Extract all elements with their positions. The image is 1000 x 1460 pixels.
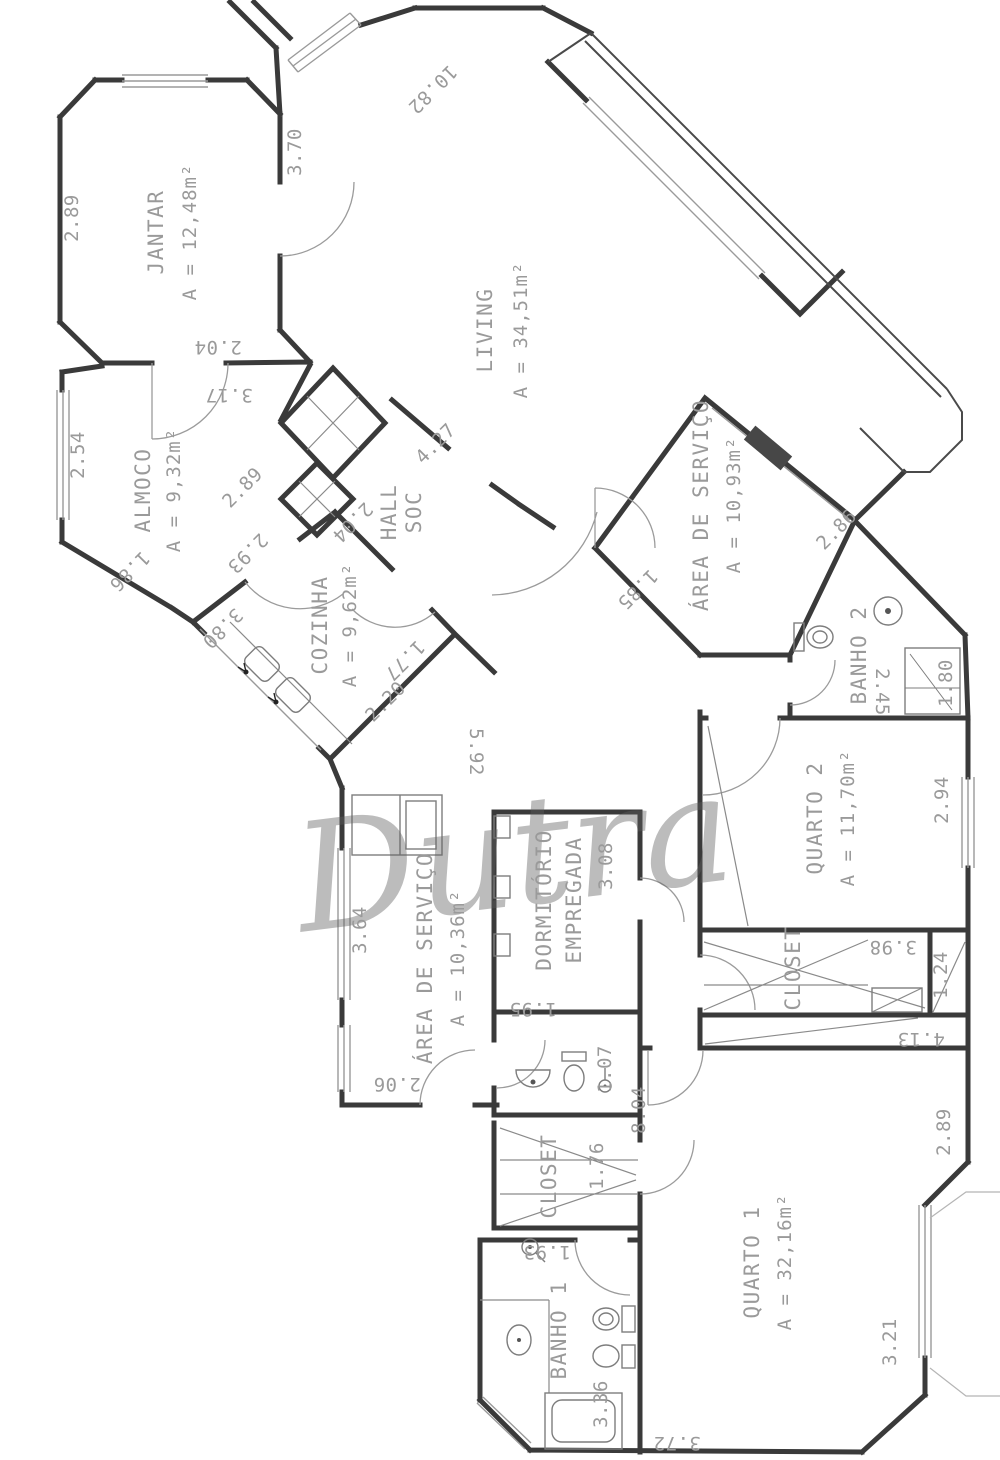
area-quarto2: A = 11,70m² [837,750,859,887]
floor-plan-drawing: Dutra JANTAR A = 12,48m² LIVING A = 34,5… [0,0,1000,1460]
dim-label: 1.07 [594,1045,616,1093]
wall-jantar [60,2,310,622]
area-jantar: A = 12,48m² [179,164,201,301]
balcony-outline [930,1192,1000,1396]
label-living: LIVING [473,288,497,373]
dim-label: 3.17 [205,384,253,406]
dim-label: 1.80 [935,659,957,707]
dim-label: 2.04 [194,336,242,358]
dim-label: 1.24 [930,951,952,999]
area-cozinha: A = 9,62m² [339,563,361,687]
dim-label: 4.13 [897,1028,945,1050]
dim-label: 2.04 [328,498,377,547]
banho2-sink-icon [874,597,902,625]
dim-label: 2.06 [373,1073,421,1095]
area-living: A = 34,51m² [510,262,532,399]
dim-label: 2.89 [218,463,267,512]
label-dormitorio-2: EMPREGADA [562,836,586,963]
dim-label: 8.04 [628,1086,650,1134]
area-servico-esq: A = 10,36m² [447,890,469,1027]
dim-label: 3.70 [284,128,306,176]
kitchen-sink-icon [238,644,313,715]
dim-label: 2.54 [67,431,89,479]
label-closet1: CLOSET [537,1134,561,1219]
label-servico-esq: ÁREA DE SERVIÇO [412,852,437,1064]
dim-label: 3.08 [595,842,617,890]
label-servico-dir: ÁREA DE SERVIÇO [688,399,713,611]
area-almoco: A = 9,32m² [163,428,185,552]
label-quarto1: QUARTO 1 [740,1205,764,1318]
floor-plan: Dutra JANTAR A = 12,48m² LIVING A = 34,5… [0,0,1000,1460]
label-dormitorio-1: DORMITÓRIO [531,829,556,970]
wc-toilet-icon [562,1052,586,1091]
dim-label: 3.72 [653,1432,701,1454]
label-closet2: CLOSET [781,926,805,1011]
dim-label: 1.77 [380,636,429,685]
terrace-pillar [744,426,792,471]
terrace-railing [548,33,962,472]
label-hall-2: SOC [402,491,426,533]
dim-label: 3.21 [879,1318,901,1366]
dim-label: 2.45 [871,668,893,716]
wall-center [193,365,553,788]
dim-label: 2.89 [933,1108,955,1156]
dim-label: 1.76 [586,1142,608,1190]
dim-label: 1.93 [523,1241,571,1263]
dim-label: 2.94 [931,776,953,824]
label-cozinha: COZINHA [308,575,332,674]
dim-label: 4.27 [411,419,460,468]
dim-label: 2.93 [223,529,272,578]
dim-label: 3.64 [349,906,371,954]
label-almoco: ALMOCO [131,448,155,533]
dim-label: 1.95 [509,998,557,1020]
banho1-sink-icon [507,1325,531,1355]
kitchen-counter [230,622,352,744]
dim-label: 2.89 [61,194,83,242]
area-quarto1: A = 32,16m² [774,1194,796,1331]
banho1-bidet-icon [593,1345,635,1368]
dim-label: 3.36 [590,1380,612,1428]
wall-living-servico [361,8,968,718]
dim-label: 5.92 [465,728,487,776]
label-hall-1: HALL [377,484,401,541]
label-banho1: BANHO 1 [547,1280,571,1379]
label-quarto2: QUARTO 2 [803,761,827,874]
label-jantar: JANTAR [144,190,168,275]
area-servico-dir: A = 10,93m² [723,437,745,574]
banho1-toilet-icon [593,1306,635,1332]
label-banho2: BANHO 2 [847,605,871,704]
dim-label: 3.98 [869,936,917,958]
dim-label: 2.86 [812,505,861,554]
dim-label: 10.82 [403,60,461,118]
